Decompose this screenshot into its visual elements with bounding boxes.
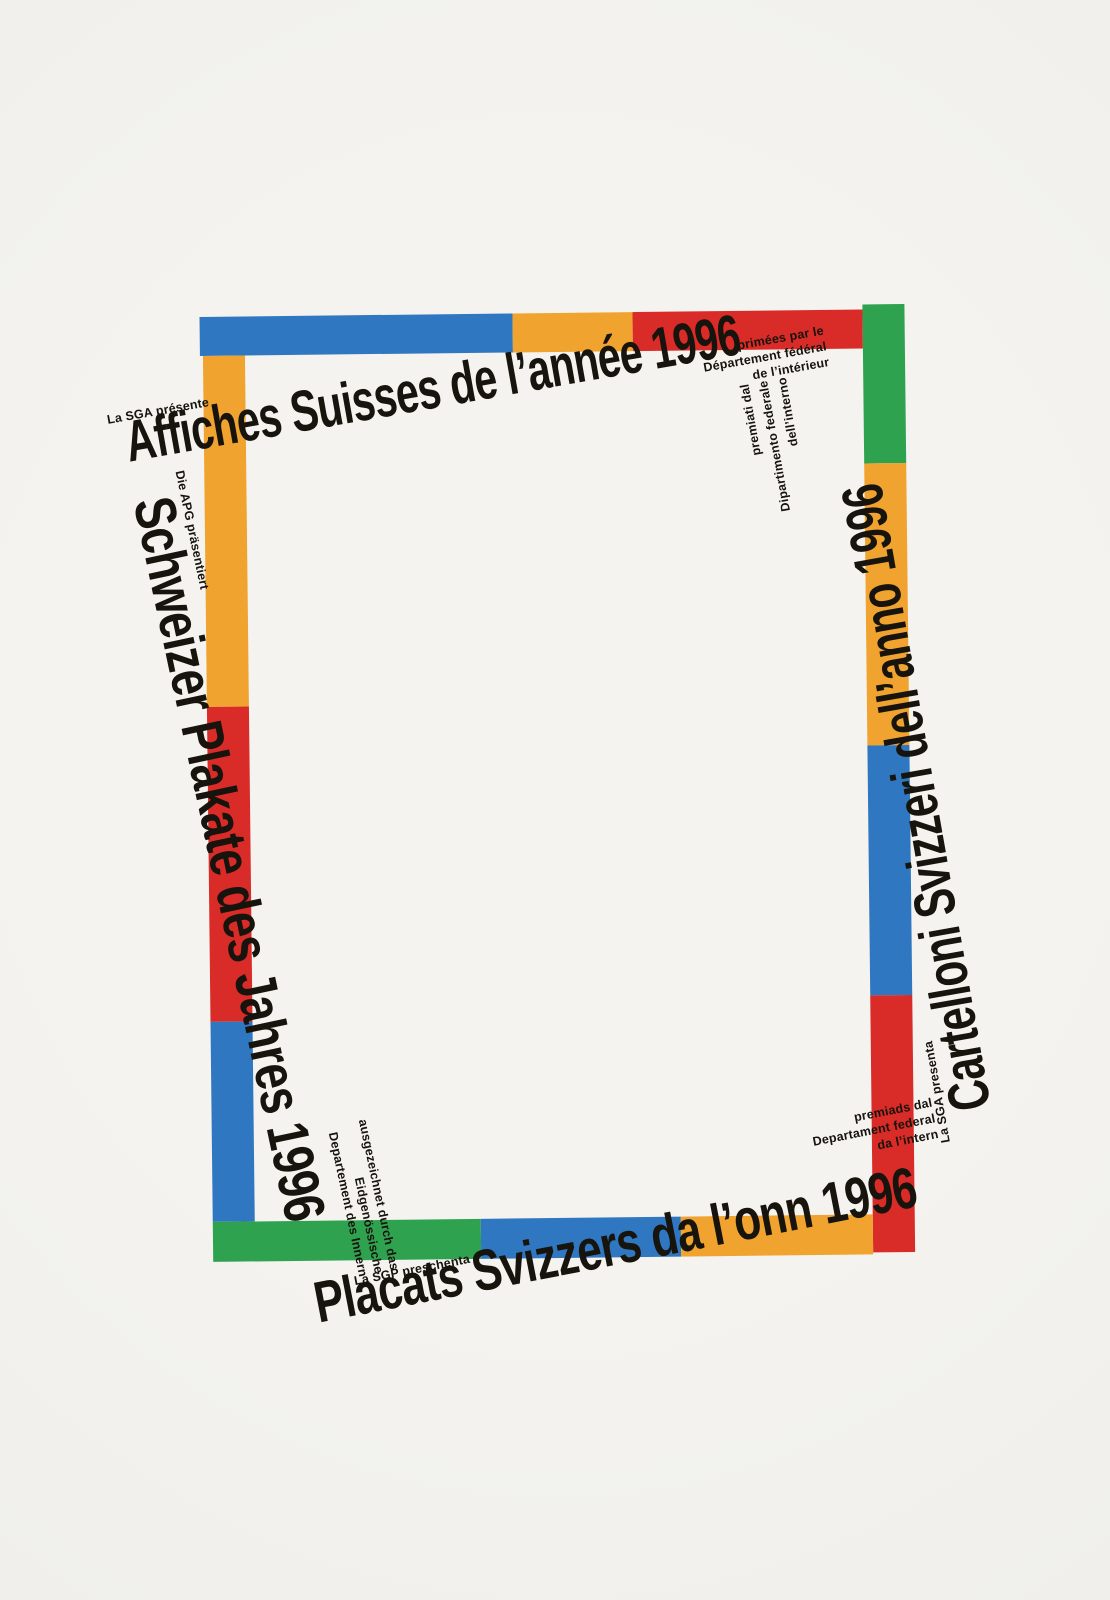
poster-canvas: Affiches Suisses de l’année 1996 Schweiz… xyxy=(0,0,1110,1600)
frame-right-segment-green xyxy=(862,304,906,463)
